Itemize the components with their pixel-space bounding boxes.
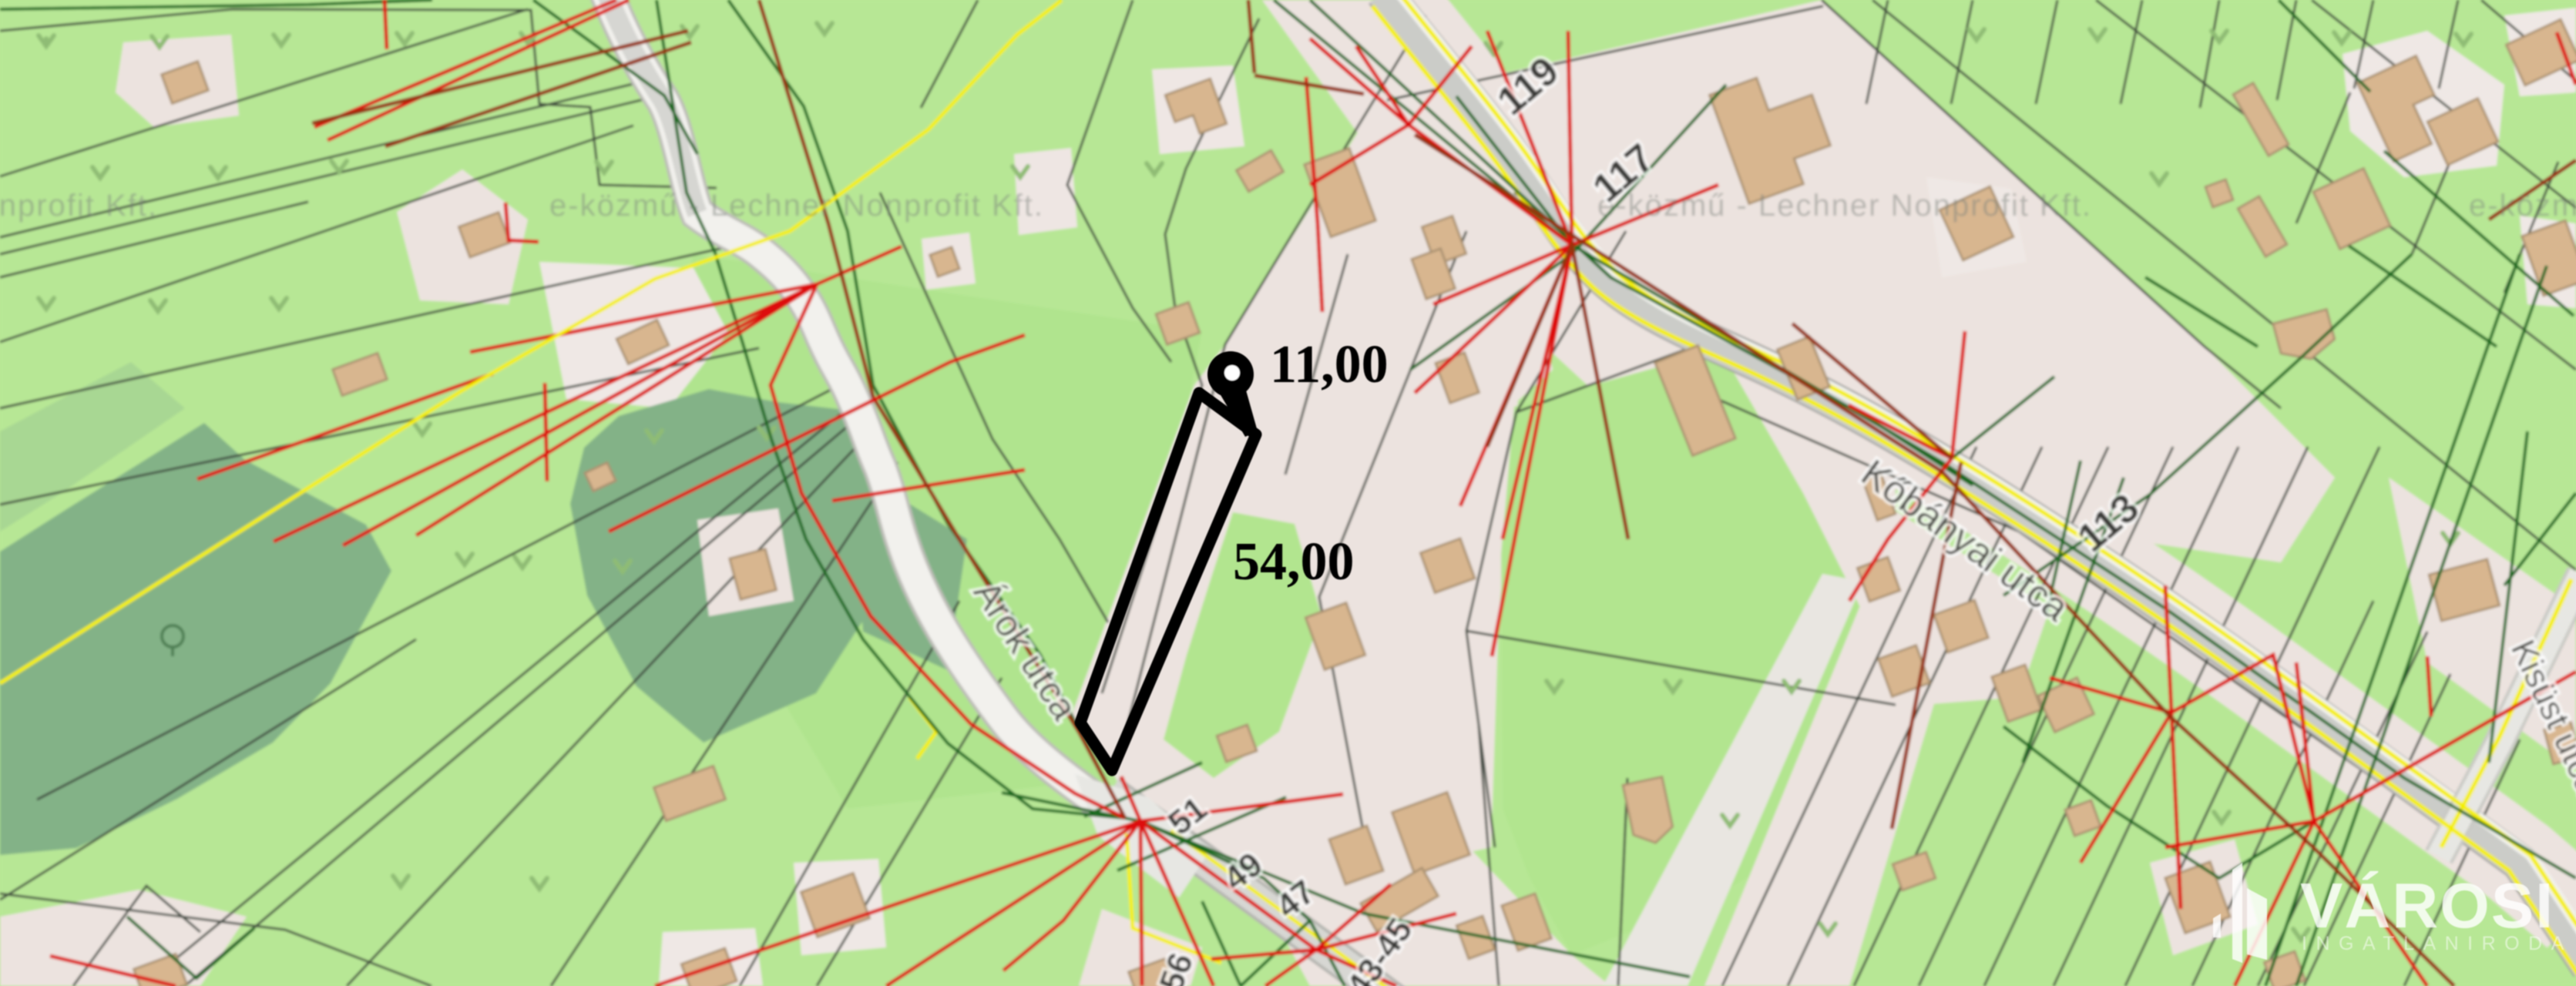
svg-text:11,00: 11,00: [1270, 335, 1389, 394]
svg-text:VÁROSI: VÁROSI: [2300, 870, 2554, 941]
svg-text:e-közmű - Lechner Nonprofit Kf: e-közmű - Lechner Nonprofit Kft.: [0, 189, 158, 223]
svg-text:e-közmű - Lechner Nonprofit Kf: e-közmű - Lechner Nonprofit Kft.: [549, 189, 1044, 223]
svg-text:e-közmű - Lechner Nonprofit Kf: e-közmű - Lechner Nonprofit Kft.: [1597, 189, 2092, 223]
svg-text:e-közmű - Lechner Nonprofit Kf: e-közmű - Lechner Nonprofit Kft.: [2469, 189, 2576, 223]
svg-text:54,00: 54,00: [1233, 532, 1355, 592]
svg-text:INGATLANIRODA: INGATLANIRODA: [2302, 933, 2573, 954]
